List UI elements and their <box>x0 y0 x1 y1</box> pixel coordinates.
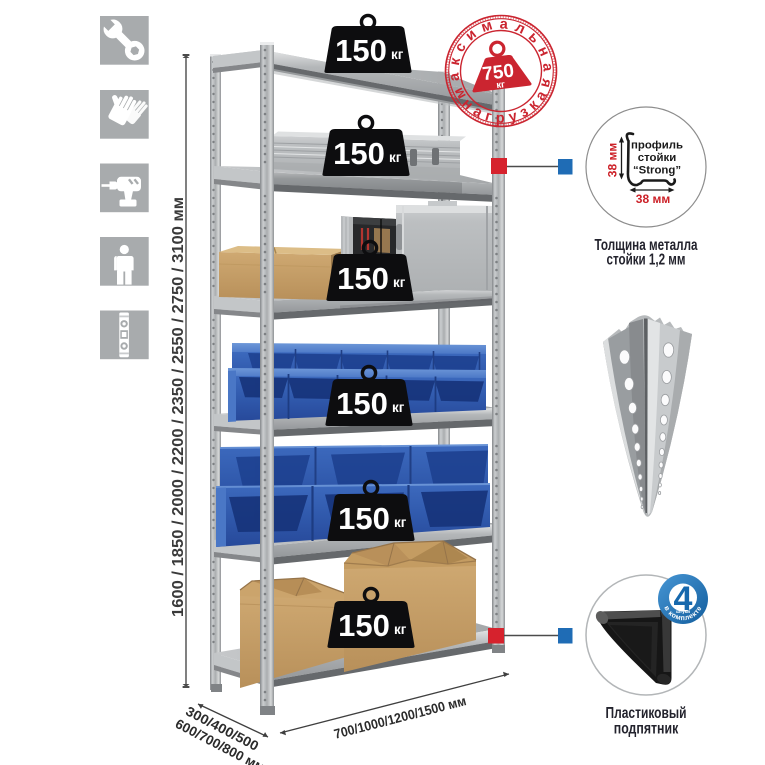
svg-text:стойки 1,2 мм: стойки 1,2 мм <box>607 252 686 269</box>
svg-text:150: 150 <box>336 386 388 421</box>
svg-text:штуки: штуки <box>676 609 690 614</box>
svg-text:150: 150 <box>337 261 389 296</box>
svg-text:кг: кг <box>391 47 404 62</box>
svg-text:150: 150 <box>335 33 387 68</box>
svg-text:стойки: стойки <box>638 152 676 164</box>
svg-text:150: 150 <box>338 501 390 536</box>
svg-text:кг: кг <box>392 400 405 415</box>
svg-text:кг: кг <box>496 79 506 91</box>
svg-text:150: 150 <box>338 608 390 643</box>
svg-text:кг: кг <box>394 622 407 637</box>
svg-text:38 мм: 38 мм <box>606 143 620 178</box>
svg-text:150: 150 <box>333 136 385 171</box>
svg-text:профиль: профиль <box>631 140 683 152</box>
svg-text:кг: кг <box>389 150 402 165</box>
svg-text:Пластиковый: Пластиковый <box>606 705 687 722</box>
svg-text:подпятник: подпятник <box>614 721 679 738</box>
svg-text:кг: кг <box>393 275 406 290</box>
svg-text:38 мм: 38 мм <box>636 192 671 206</box>
svg-text:кг: кг <box>394 515 407 530</box>
svg-text:“Strong”: “Strong” <box>633 165 681 177</box>
svg-text:1600 / 1850 / 2000 / 2200 / 23: 1600 / 1850 / 2000 / 2200 / 2350 / 2550 … <box>170 197 187 617</box>
